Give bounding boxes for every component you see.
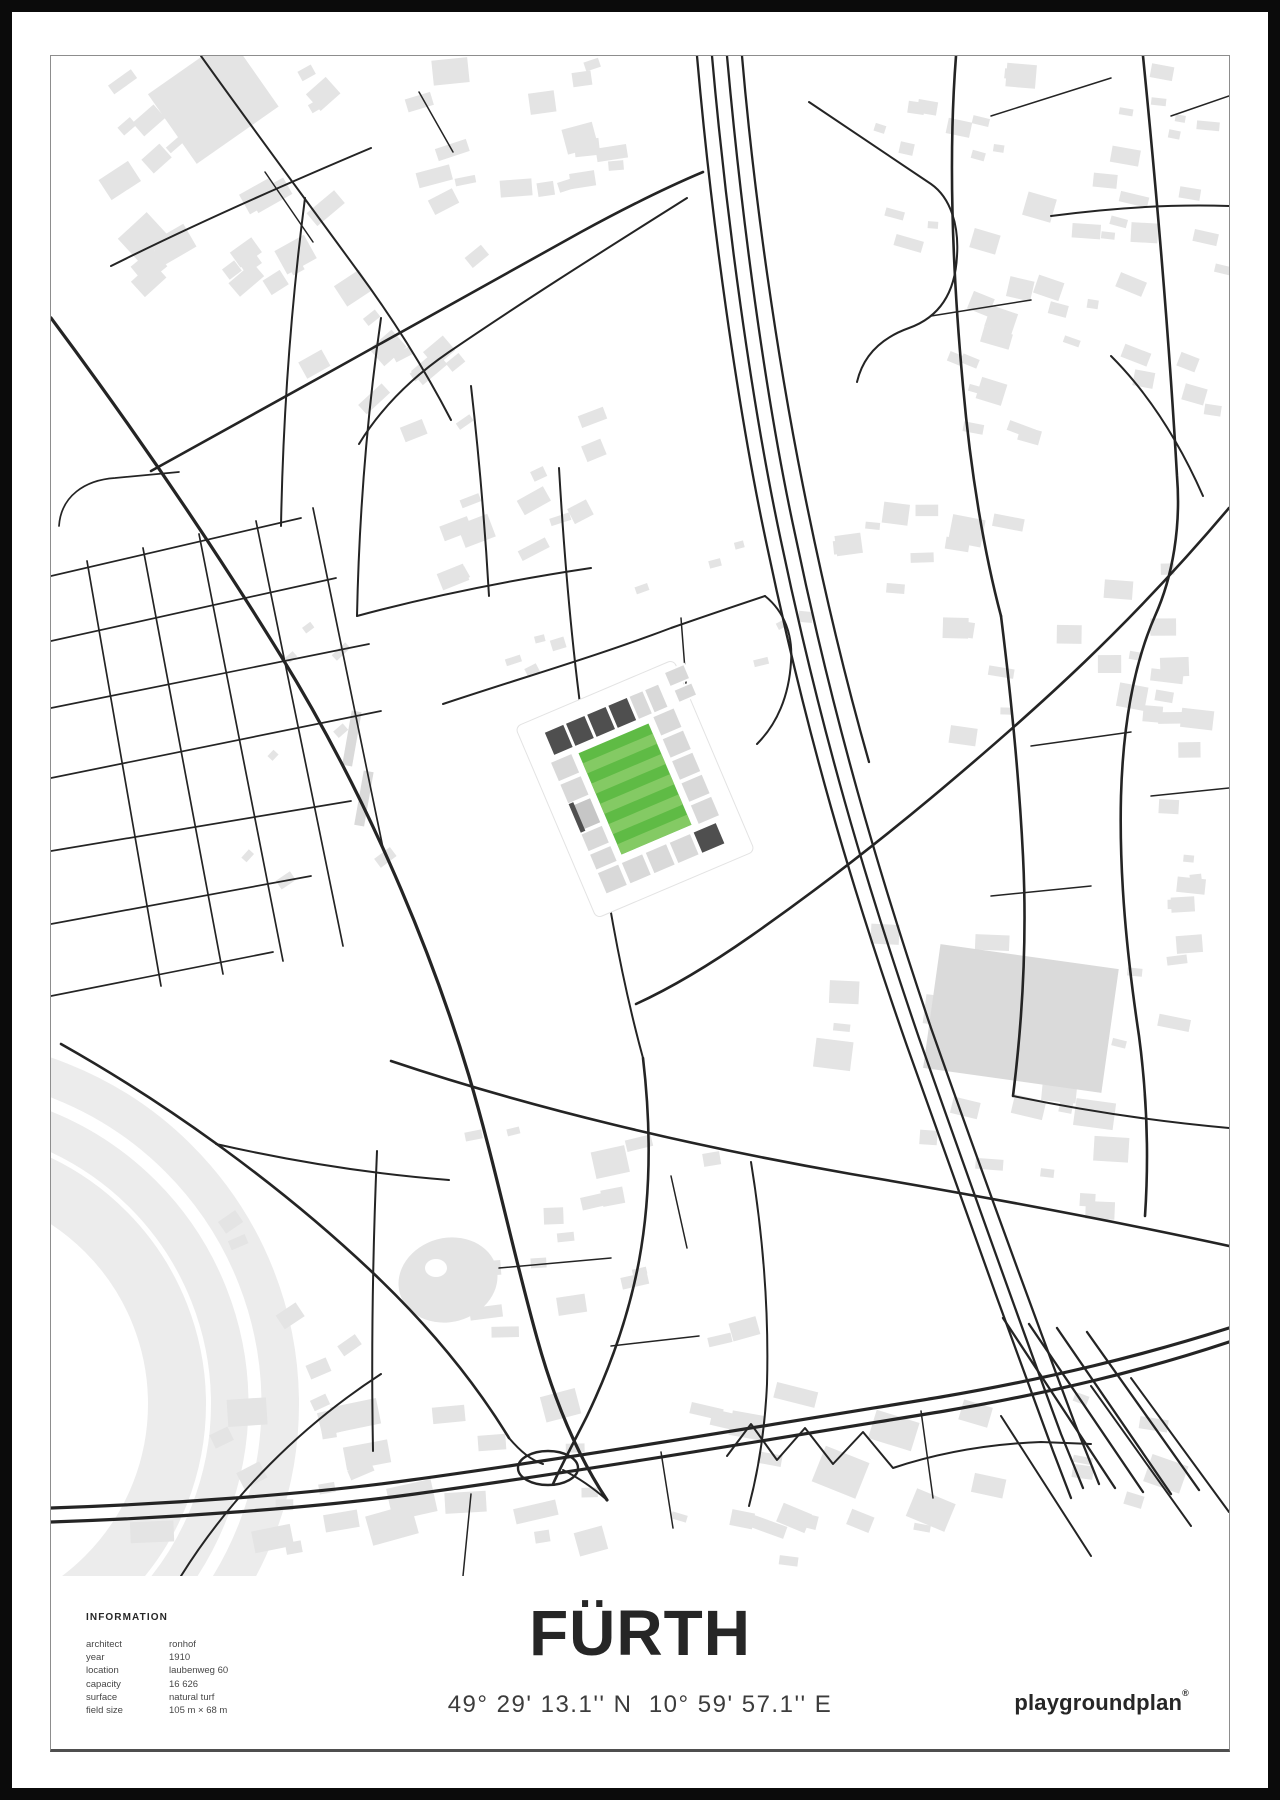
building bbox=[1093, 1136, 1129, 1163]
building bbox=[893, 234, 923, 253]
building bbox=[1179, 186, 1202, 201]
building bbox=[1150, 63, 1175, 81]
street bbox=[1111, 356, 1203, 496]
building bbox=[536, 181, 555, 197]
building bbox=[798, 611, 813, 623]
building bbox=[1151, 97, 1167, 106]
building bbox=[572, 70, 593, 87]
building bbox=[1115, 272, 1147, 297]
building bbox=[580, 1193, 605, 1211]
railway-siding bbox=[1003, 1318, 1115, 1488]
building bbox=[455, 175, 477, 186]
building bbox=[689, 1402, 723, 1421]
registered-mark: ® bbox=[1182, 1688, 1189, 1698]
street bbox=[1013, 1096, 1229, 1128]
building bbox=[285, 651, 297, 663]
street-stub bbox=[661, 1452, 673, 1528]
building bbox=[549, 512, 571, 526]
grid-corner bbox=[59, 472, 179, 526]
building bbox=[333, 723, 348, 738]
building bbox=[779, 1555, 799, 1567]
building bbox=[1214, 264, 1229, 276]
street-stub bbox=[611, 1336, 699, 1346]
building bbox=[595, 144, 628, 162]
poster-content: INFORMATION architectronhof year1910 loc… bbox=[50, 55, 1230, 1752]
building bbox=[946, 118, 973, 138]
building bbox=[321, 1425, 337, 1439]
railway-lines bbox=[697, 56, 1199, 1498]
building bbox=[1158, 799, 1179, 814]
building bbox=[456, 414, 474, 430]
building bbox=[873, 123, 886, 134]
building bbox=[1181, 383, 1207, 405]
building bbox=[969, 228, 1000, 255]
building bbox=[708, 558, 722, 568]
building bbox=[491, 1326, 519, 1337]
building bbox=[1120, 344, 1151, 367]
building bbox=[988, 665, 1015, 679]
building bbox=[734, 540, 745, 549]
building bbox=[477, 1434, 506, 1451]
building bbox=[117, 117, 136, 135]
building bbox=[960, 353, 980, 368]
allotment-grid bbox=[51, 472, 383, 996]
building bbox=[1178, 742, 1200, 758]
building bbox=[431, 57, 469, 86]
building bbox=[557, 178, 576, 193]
building bbox=[1192, 229, 1219, 246]
building bbox=[432, 1405, 466, 1424]
road-east-diagonal bbox=[636, 508, 1229, 1004]
building bbox=[543, 1207, 563, 1224]
building bbox=[334, 270, 372, 307]
building bbox=[882, 502, 910, 526]
building bbox=[707, 1333, 732, 1348]
building bbox=[884, 207, 905, 220]
building bbox=[1063, 335, 1081, 347]
building bbox=[993, 144, 1005, 153]
grid-line bbox=[51, 876, 311, 924]
building bbox=[574, 1525, 609, 1556]
building bbox=[829, 980, 860, 1004]
building bbox=[1130, 222, 1158, 243]
building bbox=[886, 583, 905, 594]
building bbox=[1132, 369, 1155, 389]
building-bar bbox=[354, 771, 373, 827]
railway-track bbox=[727, 56, 1099, 1484]
street-above-stadium bbox=[443, 596, 765, 704]
grid-line bbox=[51, 801, 351, 851]
building bbox=[550, 637, 567, 652]
building bbox=[1033, 275, 1064, 302]
building bbox=[444, 1491, 486, 1514]
building bbox=[608, 160, 624, 171]
park-arena-hole bbox=[425, 1259, 447, 1277]
building bbox=[1142, 705, 1163, 723]
building bbox=[513, 1500, 558, 1525]
building bbox=[773, 1382, 818, 1408]
building bbox=[1183, 855, 1194, 863]
building bbox=[263, 270, 289, 295]
building bbox=[323, 1510, 360, 1533]
building bbox=[310, 1394, 330, 1412]
building bbox=[1093, 173, 1118, 189]
street bbox=[1131, 1378, 1229, 1512]
building bbox=[1204, 404, 1222, 417]
street bbox=[1051, 205, 1229, 216]
street-stadium-elbow bbox=[757, 596, 791, 744]
building bbox=[227, 1397, 268, 1427]
building bbox=[518, 537, 550, 561]
building bbox=[506, 1126, 520, 1136]
building bbox=[1154, 690, 1174, 704]
building bbox=[386, 1479, 437, 1521]
brand-name: playgroundplan bbox=[1014, 1690, 1182, 1715]
building bbox=[919, 1130, 937, 1146]
grid-line bbox=[51, 644, 369, 708]
building bbox=[500, 178, 533, 197]
building bbox=[928, 221, 939, 229]
building bbox=[581, 439, 607, 462]
building bbox=[948, 725, 977, 746]
building bbox=[578, 407, 608, 428]
building bbox=[1119, 191, 1150, 208]
building bbox=[1176, 352, 1199, 373]
street bbox=[809, 102, 957, 382]
stadium-title: FÜRTH bbox=[51, 1599, 1229, 1667]
building bbox=[530, 466, 547, 482]
building bbox=[702, 1151, 721, 1167]
street-stub bbox=[1031, 732, 1131, 746]
building bbox=[583, 58, 600, 72]
street bbox=[359, 198, 687, 444]
building bbox=[267, 750, 278, 761]
building bbox=[910, 552, 933, 563]
building bbox=[557, 1232, 575, 1243]
building bbox=[907, 101, 925, 115]
railway-track bbox=[742, 56, 869, 762]
building bbox=[400, 419, 428, 442]
building bbox=[1176, 876, 1206, 894]
building bbox=[581, 1488, 597, 1498]
grid-line bbox=[199, 534, 283, 961]
building bbox=[1110, 146, 1141, 167]
building bbox=[898, 141, 914, 156]
building bbox=[241, 849, 254, 862]
building bbox=[865, 522, 880, 530]
building bbox=[297, 64, 315, 81]
building bbox=[460, 493, 482, 508]
poster: INFORMATION architectronhof year1910 loc… bbox=[0, 0, 1280, 1800]
building bbox=[975, 934, 1010, 951]
building bbox=[534, 1530, 551, 1544]
building bbox=[1167, 899, 1188, 909]
building bbox=[530, 1257, 546, 1268]
road-northwest-diagonal bbox=[151, 172, 703, 471]
building bbox=[464, 1129, 483, 1141]
building bbox=[976, 377, 1008, 406]
building bbox=[906, 1488, 956, 1532]
grid-line bbox=[51, 952, 273, 996]
building bbox=[1166, 954, 1187, 965]
building bbox=[1123, 1491, 1144, 1508]
building bbox=[534, 634, 546, 643]
stadium-group bbox=[515, 657, 762, 919]
building bbox=[1104, 579, 1134, 599]
street-stub bbox=[1171, 96, 1229, 116]
building bbox=[1040, 1168, 1054, 1178]
street bbox=[357, 318, 381, 616]
building bbox=[833, 1023, 850, 1032]
building bbox=[1168, 129, 1181, 139]
building bbox=[517, 486, 551, 515]
building bbox=[943, 617, 969, 638]
building bbox=[972, 115, 990, 127]
building bbox=[130, 1520, 174, 1543]
building bbox=[1196, 120, 1220, 131]
building bbox=[305, 1357, 331, 1379]
building bbox=[671, 1511, 688, 1522]
street bbox=[1001, 1416, 1091, 1556]
railway-track bbox=[697, 56, 1071, 1498]
building bbox=[465, 245, 489, 268]
building bbox=[99, 161, 141, 200]
building bbox=[753, 657, 769, 667]
street bbox=[471, 386, 489, 596]
building bbox=[1048, 301, 1069, 318]
building bbox=[1176, 934, 1203, 954]
building bbox=[915, 505, 938, 516]
building bbox=[729, 1316, 761, 1341]
building bbox=[1175, 114, 1186, 123]
building bbox=[950, 1096, 981, 1119]
building bbox=[416, 164, 453, 188]
building bbox=[302, 622, 314, 634]
building bbox=[528, 90, 557, 115]
street-stub bbox=[419, 92, 453, 152]
building bbox=[1119, 107, 1134, 116]
building bbox=[1109, 216, 1128, 229]
street-stub bbox=[921, 1411, 933, 1498]
grid-line bbox=[51, 578, 336, 641]
building bbox=[1098, 655, 1121, 673]
stadium-map bbox=[51, 56, 1229, 1576]
building bbox=[812, 1446, 870, 1499]
building bbox=[1072, 223, 1101, 239]
street-stub bbox=[991, 886, 1091, 896]
building bbox=[634, 583, 649, 594]
building bbox=[358, 383, 390, 414]
building bbox=[971, 150, 986, 162]
building bbox=[1022, 192, 1057, 223]
building bbox=[1006, 276, 1035, 301]
building bbox=[846, 1509, 874, 1533]
building bbox=[1157, 1014, 1191, 1032]
brand-logo: playgroundplan® bbox=[1014, 1688, 1189, 1716]
street bbox=[357, 568, 591, 616]
building bbox=[1101, 231, 1115, 239]
building bbox=[567, 499, 594, 524]
building bbox=[1057, 625, 1082, 644]
building bbox=[834, 533, 862, 557]
street bbox=[216, 1144, 449, 1180]
building bbox=[591, 1145, 630, 1179]
building bbox=[108, 69, 137, 94]
grid-line bbox=[313, 508, 383, 848]
street-stub bbox=[1151, 788, 1229, 796]
building bbox=[1180, 708, 1214, 731]
building bbox=[992, 513, 1025, 531]
building bbox=[556, 1294, 587, 1316]
building bbox=[505, 655, 522, 667]
building bbox=[971, 1473, 1006, 1499]
building bbox=[1087, 299, 1099, 309]
building bbox=[428, 188, 459, 215]
building bbox=[337, 1334, 362, 1356]
building bbox=[1111, 1038, 1127, 1049]
building bbox=[363, 310, 380, 326]
street-stub bbox=[671, 1176, 687, 1248]
